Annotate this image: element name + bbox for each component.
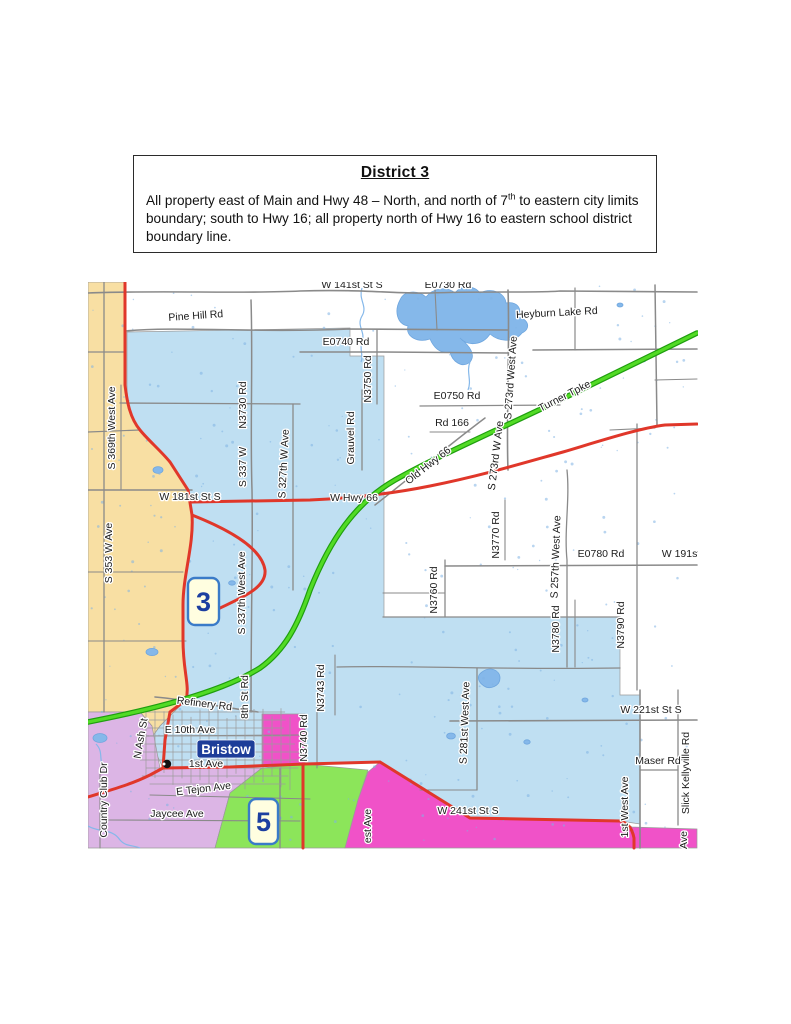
road-label: E0740 Rd — [323, 336, 370, 348]
road-label: N3780 Rd — [550, 605, 562, 652]
road-label: E 10th Ave — [165, 724, 216, 736]
road-label: N3770 Rd — [490, 511, 502, 558]
road-label: N3730 Rd — [237, 381, 249, 428]
road-label: E0780 Rd — [578, 548, 625, 560]
district-number: 3 — [196, 587, 211, 617]
road-label: W 181st St S — [159, 491, 220, 503]
district-title-box: District 3 All property east of Main and… — [133, 155, 657, 253]
road-label: W 221st St S — [620, 704, 681, 716]
road-label: N3790 Rd — [615, 601, 627, 648]
city-marker-highlight — [163, 763, 166, 766]
road-label: S 337th West Ave — [236, 551, 248, 634]
city-label: Bristow — [201, 742, 251, 757]
district-map: W 141st St SE0730 RdPine Hill RdHeyburn … — [88, 282, 698, 850]
road-label: Jaycee Ave — [150, 808, 204, 820]
district-badge: 3 — [188, 578, 219, 625]
road-label: S 353 W Ave — [103, 523, 115, 584]
district-description: All property east of Main and Hwy 48 – N… — [146, 192, 644, 246]
road-label: S 337 W — [237, 447, 249, 487]
road-label: S 369th West Ave — [106, 386, 118, 469]
road-label: Grauvel Rd — [345, 411, 357, 464]
road-label: W 241st St S — [437, 805, 498, 817]
district-badge: 5 — [249, 799, 278, 844]
map-canvas: W 141st St SE0730 RdPine Hill RdHeyburn … — [88, 282, 698, 850]
road-label: N3740 Rd — [298, 714, 310, 761]
road-label: 1st Ave — [189, 758, 223, 770]
road-label: Country Club Dr — [98, 762, 110, 838]
district-number: 5 — [256, 807, 271, 837]
road-label: Ave — [678, 831, 690, 849]
road-label: 8th St Rd — [239, 675, 251, 719]
road-label: Rd 166 — [435, 417, 469, 429]
district-title: District 3 — [146, 164, 644, 182]
road-label: W Hwy 66 — [330, 492, 378, 504]
road-label: 1st West Ave — [619, 776, 631, 837]
road-label: E0750 Rd — [434, 390, 481, 402]
road-label: Slick Kellyville Rd — [680, 732, 692, 814]
road-label: W 191st — [662, 548, 698, 560]
road-label: W 141st St S — [321, 282, 382, 291]
road-label: Maser Rd — [635, 755, 681, 767]
road-label: E0730 Rd — [425, 282, 472, 291]
document-page: District 3 All property east of Main and… — [0, 0, 791, 1024]
road-label: N3743 Rd — [315, 664, 327, 711]
road-label: N3760 Rd — [428, 566, 440, 613]
road-label: N3750 Rd — [362, 355, 374, 402]
road-label: est Ave — [362, 809, 374, 843]
